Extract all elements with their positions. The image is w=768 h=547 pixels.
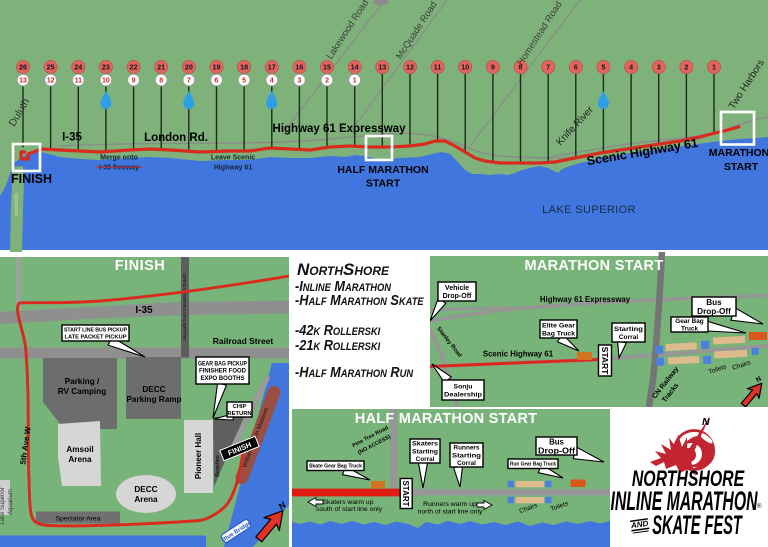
svg-text:Drop-Off: Drop-Off: [697, 307, 731, 316]
svg-text:12: 12: [47, 78, 55, 85]
svg-text:22: 22: [130, 63, 138, 72]
svg-text:START: START: [724, 161, 759, 173]
svg-text:Dealership: Dealership: [444, 391, 482, 398]
svg-text:Drop-Off: Drop-Off: [538, 446, 575, 455]
svg-text:GEAR BAG PICKUP: GEAR BAG PICKUP: [198, 361, 247, 367]
svg-text:Starting: Starting: [614, 326, 643, 333]
svg-text:9: 9: [132, 78, 136, 85]
svg-text:5: 5: [601, 63, 605, 72]
svg-text:Corral: Corral: [619, 334, 639, 341]
svg-text:Starting: Starting: [412, 448, 438, 455]
svg-text:Leave Scenic: Leave Scenic: [211, 155, 255, 162]
svg-text:START: START: [401, 480, 410, 506]
svg-text:2: 2: [325, 78, 329, 85]
svg-text:Runners: Runners: [454, 445, 480, 452]
svg-text:Amsoil: Amsoil: [66, 445, 93, 454]
svg-text:6: 6: [574, 63, 578, 72]
svg-text:START: START: [600, 347, 610, 376]
svg-text:FINISH: FINISH: [115, 258, 166, 274]
svg-text:Runners warm up: Runners warm up: [423, 501, 477, 508]
svg-text:Beaches: Beaches: [215, 455, 221, 477]
svg-text:N: N: [702, 416, 710, 428]
svg-text:MARATHON START: MARATHON START: [525, 258, 664, 274]
svg-text:25: 25: [47, 63, 55, 72]
svg-text:19: 19: [212, 63, 220, 72]
svg-text:Highway 61: Highway 61: [214, 165, 253, 172]
svg-text:®: ®: [757, 503, 762, 510]
svg-text:north of start line only: north of start line only: [418, 509, 484, 516]
svg-text:Arena: Arena: [134, 495, 158, 504]
svg-text:1: 1: [712, 63, 716, 72]
svg-text:Run Gear Bag Truck: Run Gear Bag Truck: [510, 462, 556, 468]
svg-text:12: 12: [406, 63, 414, 72]
svg-text:RETURN: RETURN: [227, 411, 251, 417]
svg-text:DECC: DECC: [142, 385, 165, 394]
svg-text:Gear Bag: Gear Bag: [675, 318, 704, 325]
svg-text:FINISHER FOOD: FINISHER FOOD: [199, 369, 247, 375]
svg-text:Railroad Street: Railroad Street: [213, 336, 274, 346]
svg-text:Lake Superior: Lake Superior: [0, 487, 6, 524]
svg-text:1: 1: [353, 78, 357, 85]
svg-text:Vehicle: Vehicle: [445, 285, 469, 292]
svg-text:I-35 freeway: I-35 freeway: [99, 165, 139, 172]
svg-text:Scenic Highway 61: Scenic Highway 61: [483, 350, 554, 359]
svg-text:RV Camping: RV Camping: [58, 387, 107, 396]
svg-text:Elite Gear: Elite Gear: [542, 322, 575, 329]
svg-text:LAKE SUPERIOR: LAKE SUPERIOR: [542, 204, 636, 216]
svg-text:21: 21: [157, 63, 165, 72]
svg-text:Sonju: Sonju: [454, 383, 473, 390]
svg-text:7: 7: [546, 63, 550, 72]
svg-text:Aquarium: Aquarium: [8, 489, 14, 515]
svg-text:Pioneer Hall: Pioneer Hall: [194, 433, 203, 479]
svg-text:10: 10: [461, 63, 469, 72]
svg-text:EXPO BOOTHS: EXPO BOOTHS: [200, 376, 244, 382]
svg-text:3: 3: [297, 78, 301, 85]
svg-text:START: START: [366, 178, 401, 190]
svg-text:Bus: Bus: [549, 437, 564, 446]
svg-text:START LINE BUS PICKUP: START LINE BUS PICKUP: [64, 328, 127, 334]
svg-text:London Rd.: London Rd.: [144, 132, 208, 144]
svg-text:SKATE FEST: SKATE FEST: [652, 509, 743, 540]
svg-text:I-35: I-35: [62, 132, 82, 144]
svg-text:9: 9: [491, 63, 495, 72]
svg-text:Corral: Corral: [457, 460, 476, 467]
svg-text:15: 15: [323, 63, 331, 72]
svg-text:6: 6: [215, 78, 219, 85]
svg-text:Skywalk from Downtown Duluth: Skywalk from Downtown Duluth: [182, 273, 188, 341]
svg-text:LATE PACKET PICKUP: LATE PACKET PICKUP: [64, 335, 126, 341]
svg-text:HALF MARATHON START: HALF MARATHON START: [355, 411, 537, 427]
svg-text:CHIP: CHIP: [233, 404, 247, 410]
svg-text:11: 11: [434, 63, 442, 72]
svg-text:20: 20: [185, 63, 193, 72]
svg-text:13: 13: [378, 63, 386, 72]
svg-text:Skate Gear Bag Truck: Skate Gear Bag Truck: [309, 464, 362, 470]
svg-text:16: 16: [295, 63, 303, 72]
svg-text:Truck: Truck: [681, 326, 698, 333]
svg-text:HALF MARATHON: HALF MARATHON: [337, 164, 428, 176]
svg-text:Bus: Bus: [706, 298, 722, 307]
svg-text:Bag Truck: Bag Truck: [542, 330, 575, 337]
svg-text:Starting: Starting: [452, 452, 481, 459]
svg-text:Merge onto: Merge onto: [100, 155, 138, 162]
svg-text:4: 4: [270, 78, 274, 85]
svg-text:Highway 61 Expressway: Highway 61 Expressway: [273, 123, 407, 135]
svg-text:Highway 61 Expressway: Highway 61 Expressway: [540, 295, 631, 304]
svg-text:FINISH: FINISH: [11, 172, 52, 186]
svg-text:10: 10: [102, 78, 110, 85]
svg-text:5: 5: [242, 78, 246, 85]
svg-text:Skaters: Skaters: [412, 441, 438, 448]
svg-text:4: 4: [629, 63, 633, 72]
svg-text:23: 23: [102, 63, 110, 72]
svg-text:Parking Ramp: Parking Ramp: [126, 395, 181, 404]
svg-text:2: 2: [684, 63, 688, 72]
svg-text:18: 18: [240, 63, 248, 72]
svg-text:26: 26: [19, 63, 27, 72]
svg-text:MARATHON: MARATHON: [709, 147, 768, 159]
svg-text:7: 7: [187, 78, 191, 85]
svg-text:8: 8: [159, 78, 163, 85]
svg-text:24: 24: [74, 63, 82, 72]
svg-text:13: 13: [19, 78, 27, 85]
svg-text:Drop-Off: Drop-Off: [443, 293, 472, 300]
svg-text:11: 11: [75, 78, 83, 85]
svg-text:17: 17: [268, 63, 276, 72]
svg-text:Parking /: Parking /: [65, 377, 100, 386]
svg-text:Skaters warm up: Skaters warm up: [323, 499, 374, 506]
svg-text:3: 3: [657, 63, 661, 72]
svg-text:14: 14: [351, 63, 359, 72]
svg-text:I-35: I-35: [135, 305, 153, 316]
svg-text:Arena: Arena: [68, 455, 92, 464]
svg-text:DECC: DECC: [134, 485, 157, 494]
svg-text:Spectator Area: Spectator Area: [56, 516, 101, 523]
svg-text:south of start line only: south of start line only: [316, 506, 383, 513]
svg-text:Corral: Corral: [416, 456, 435, 463]
